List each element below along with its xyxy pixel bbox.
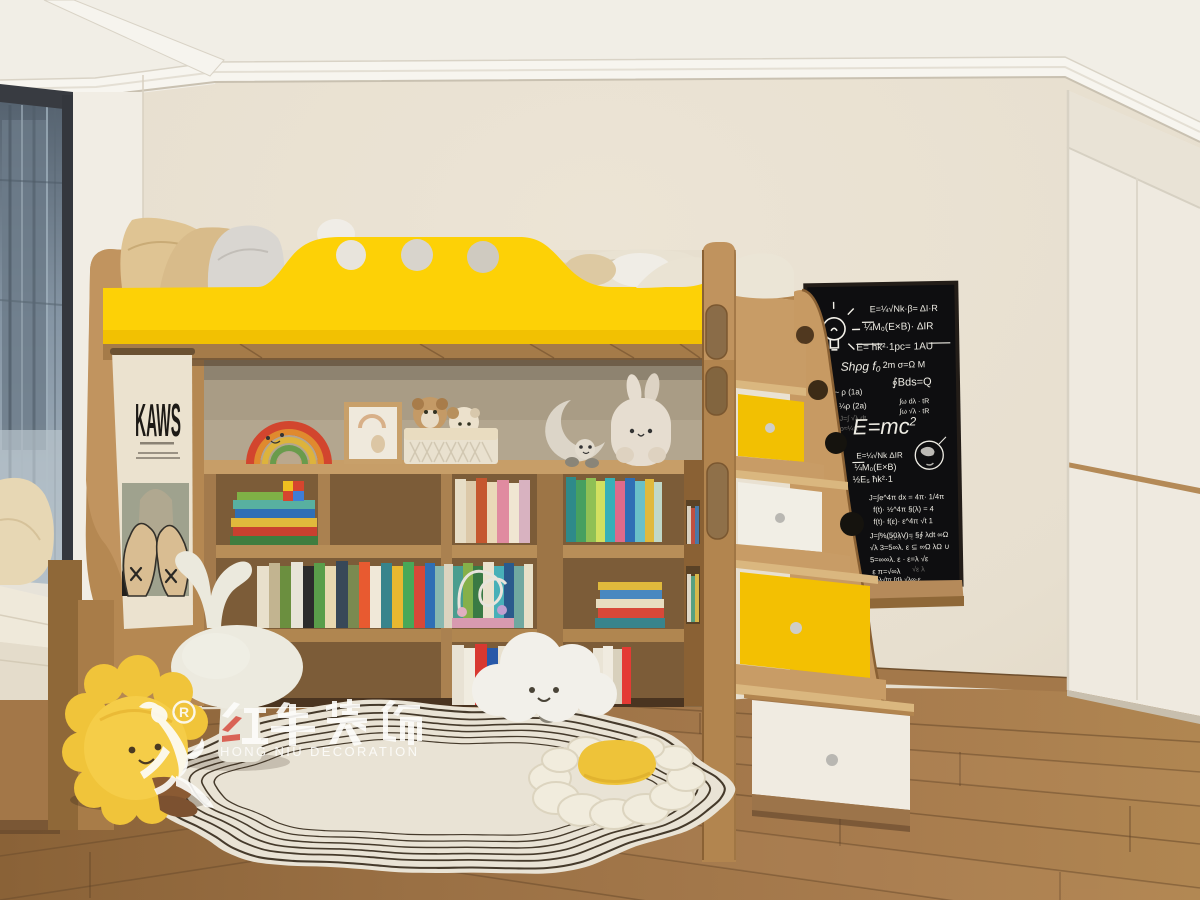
svg-text:ε π=√∞λ: ε π=√∞λ <box>872 567 901 576</box>
svg-text:¼M₀(E×B): ¼M₀(E×B) <box>854 462 896 473</box>
svg-text:5=∞∞λ. ε · ε=λ √ε: 5=∞∞λ. ε · ε=λ √ε <box>870 554 929 564</box>
svg-text:√ε λ: √ε λ <box>912 565 925 573</box>
svg-text:KAWS: KAWS <box>135 394 181 446</box>
svg-text:f(t)· ½^4π §(λ) = 4: f(t)· ½^4π §(λ) = 4 <box>873 504 934 514</box>
svg-text:J=∫e^4π dx = 4π· 1/4π: J=∫e^4π dx = 4π· 1/4π <box>869 492 944 502</box>
svg-text:E= ħk²·1pc= 1AU: E= ħk²·1pc= 1AU <box>856 341 933 353</box>
svg-text:∫ω dλ · tR: ∫ω dλ · tR <box>898 398 929 406</box>
svg-text:2m σ=Ω M: 2m σ=Ω M <box>883 359 926 370</box>
svg-text:ρ≈¼π: ρ≈¼π <box>840 425 859 432</box>
svg-text:∮Bds=Q: ∮Bds=Q <box>892 376 932 389</box>
svg-text:E=¼√Nk·β= ΔI·R: E=¼√Nk·β= ΔI·R <box>870 303 939 314</box>
svg-text:R: R <box>179 704 189 720</box>
svg-text:√λ 3=5∞λ. ε ⊆ ∞Ω λΩ ∪: √λ 3=5∞λ. ε ⊆ ∞Ω λΩ ∪ <box>870 542 950 552</box>
svg-text:¼M₀(E×B)· ΔIR: ¼M₀(E×B)· ΔIR <box>864 320 934 333</box>
svg-text:E=¼√Nk ΔIR: E=¼√Nk ΔIR <box>856 451 903 461</box>
svg-text:Shρg f₀: Shρg f₀ <box>841 359 881 374</box>
svg-text:J=∫ √λ dt: J=∫ √λ dt <box>840 414 867 422</box>
svg-text:∞Ω λ ∪ ε: ∞Ω λ ∪ ε <box>886 534 914 541</box>
svg-text:f(t)· f(ε)· ε^4π √t 1: f(t)· f(ε)· ε^4π √t 1 <box>873 516 933 526</box>
svg-text:½E₅ ħk²·1: ½E₅ ħk²·1 <box>853 474 893 485</box>
svg-text:HONG NIU DECORATION: HONG NIU DECORATION <box>220 744 420 759</box>
